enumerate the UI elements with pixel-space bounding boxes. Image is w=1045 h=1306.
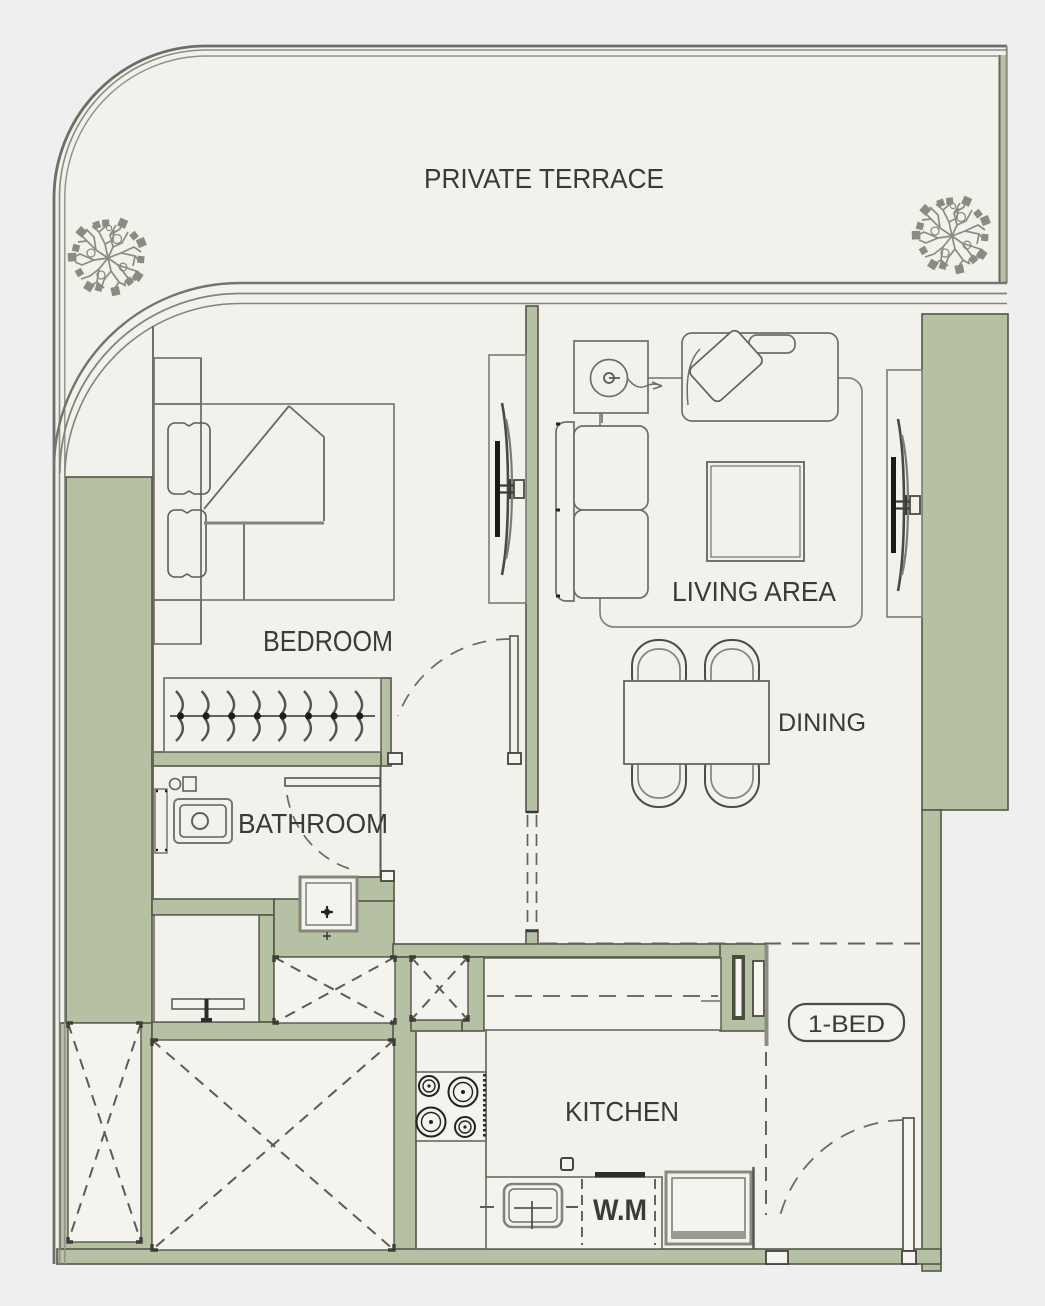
svg-text:LIVING AREA: LIVING AREA	[672, 576, 836, 607]
svg-text:KITCHEN: KITCHEN	[565, 1096, 679, 1127]
svg-text:DINING: DINING	[778, 709, 866, 737]
svg-text:1-BED: 1-BED	[808, 1011, 885, 1038]
svg-text:BATHROOM: BATHROOM	[238, 808, 388, 839]
svg-text:BEDROOM: BEDROOM	[263, 626, 393, 658]
svg-text:W.M: W.M	[593, 1194, 647, 1227]
svg-text:PRIVATE TERRACE: PRIVATE TERRACE	[424, 163, 664, 194]
